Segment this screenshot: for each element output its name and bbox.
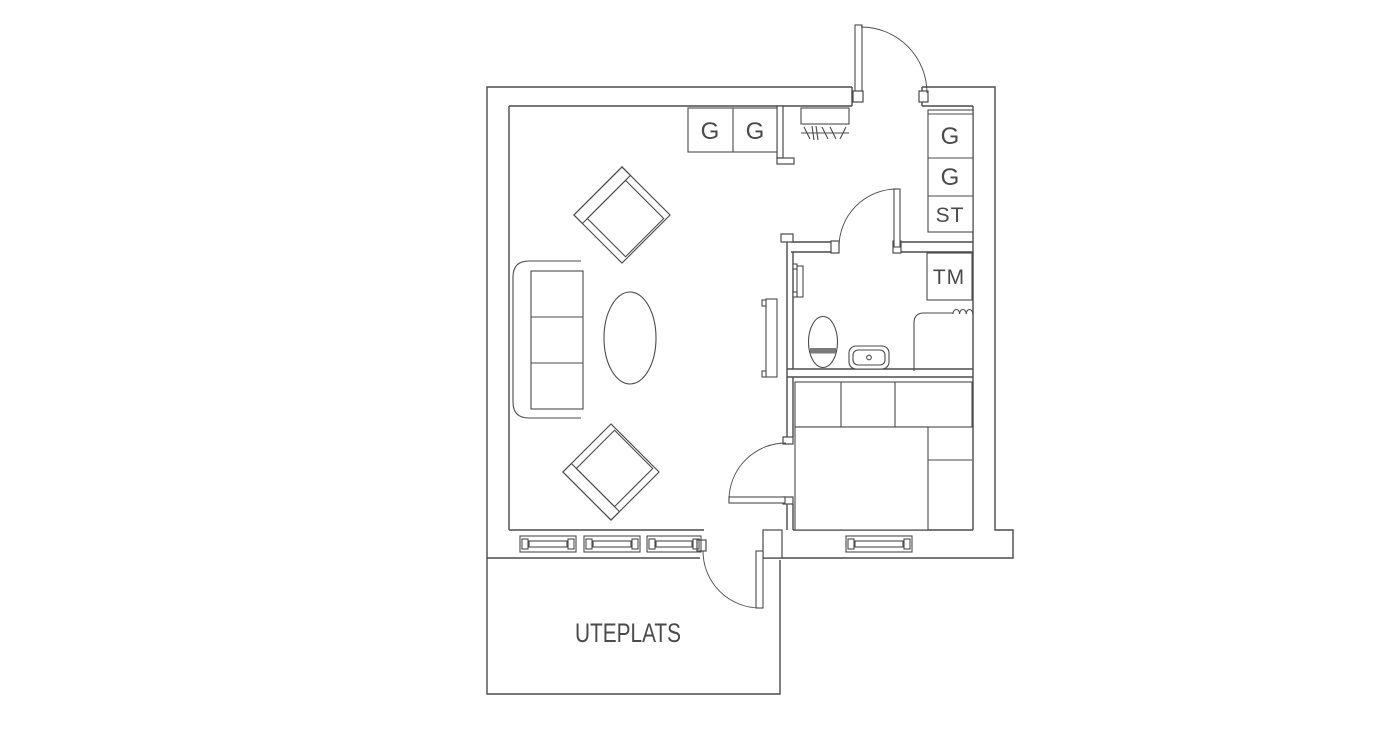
coffee-table <box>604 292 656 384</box>
washing-machine-label: TM <box>933 266 965 289</box>
armchair-top-outline <box>574 167 670 263</box>
armchair-top-backrest <box>574 167 631 224</box>
shower-enclosure <box>914 313 953 371</box>
window-living-2 <box>584 536 640 552</box>
bathroom-door-swing-arc <box>839 189 897 247</box>
kitchen-counter-row <box>795 382 972 427</box>
toilet <box>809 317 838 368</box>
window-glazing <box>529 541 567 547</box>
entrance-door-leaf <box>855 25 862 93</box>
window-cap-left <box>586 539 592 549</box>
kitchen-wall-west-lower <box>787 504 793 530</box>
window-cap-right <box>568 539 574 549</box>
wardrobe-label-2: G <box>941 164 960 191</box>
window-cap-left <box>522 539 528 549</box>
bathroom-radiator-nub-bottom <box>793 292 797 297</box>
bathroom-corner-nub <box>781 234 793 242</box>
bathroom-radiator <box>793 264 803 297</box>
bathroom-door-jamb-left <box>831 241 839 253</box>
bathroom-wall-north-right <box>897 242 973 252</box>
patio-door-swing-arc <box>703 551 760 608</box>
window-cap-left <box>649 539 655 549</box>
sofa <box>513 261 583 418</box>
wardrobe-top-label-1: G <box>701 118 720 145</box>
sink <box>849 346 889 369</box>
floor-plan-canvas: G G G G ST TM <box>0 0 1400 733</box>
hall-coat-rack <box>801 108 849 140</box>
wardrobe-label-1: G <box>941 123 960 150</box>
bathroom-radiator-nub-top <box>793 264 797 269</box>
window-living-1 <box>520 536 576 552</box>
sofa-seat <box>531 271 583 409</box>
armchair-bottom <box>563 424 659 520</box>
wardrobe-column: G G ST <box>928 110 973 232</box>
toilet-seat-band <box>810 348 836 354</box>
patio-door-jamb-block <box>763 530 782 558</box>
window-frame <box>846 536 912 552</box>
kitchen-table <box>795 427 928 530</box>
wardrobe-top-label-2: G <box>746 118 765 145</box>
partition-stub-cap <box>777 158 794 164</box>
living-room-radiator-body <box>766 299 777 377</box>
entrance-door <box>853 25 928 102</box>
window-cap-right <box>904 539 910 549</box>
shower-curtain <box>953 310 973 315</box>
window-cap-right <box>632 539 638 549</box>
entrance-door-swing-arc <box>861 27 927 93</box>
washing-machine: TM <box>927 253 972 300</box>
living-room-radiator-nub-bottom <box>762 371 766 377</box>
armchair-bottom-backrest <box>563 464 620 521</box>
armchair-bottom-seat <box>576 430 652 506</box>
patio-label: UTEPLATS <box>575 618 681 648</box>
cleaning-closet-label: ST <box>936 204 965 227</box>
bathroom-door <box>839 189 900 247</box>
armchair-top-seat <box>587 180 663 256</box>
kitchen-door <box>729 443 786 503</box>
window-kitchen <box>846 536 912 552</box>
patio-door-leaf <box>756 551 763 608</box>
toilet-bowl <box>809 317 838 368</box>
window-cap-left <box>848 539 854 549</box>
wardrobe-top-pair: G G <box>688 108 777 152</box>
patio-door <box>703 551 763 608</box>
kitchen <box>795 382 972 530</box>
kitchen-door-leaf <box>729 497 785 503</box>
entrance-door-hinge-block <box>853 91 863 102</box>
window-glazing <box>855 541 903 547</box>
floor-plan-drawing: G G G G ST TM <box>0 0 1400 733</box>
living-room-radiator-nub-top <box>762 300 766 306</box>
window-living-3 <box>647 536 701 552</box>
kitchen-door-swing-arc <box>729 443 786 500</box>
window-glazing <box>656 541 692 547</box>
shower <box>914 310 973 372</box>
partition-stub <box>777 106 783 158</box>
window-glazing <box>593 541 631 547</box>
bathroom-wall-west <box>787 242 793 437</box>
living-room-radiator <box>762 299 777 377</box>
bathroom-door-leaf <box>894 189 900 247</box>
armchair-top <box>574 167 670 263</box>
coat-rack-shelf <box>801 108 849 124</box>
armchair-bottom-outline <box>563 424 659 520</box>
bathroom-wall-south <box>787 369 973 377</box>
bathroom-radiator-body <box>797 266 803 297</box>
